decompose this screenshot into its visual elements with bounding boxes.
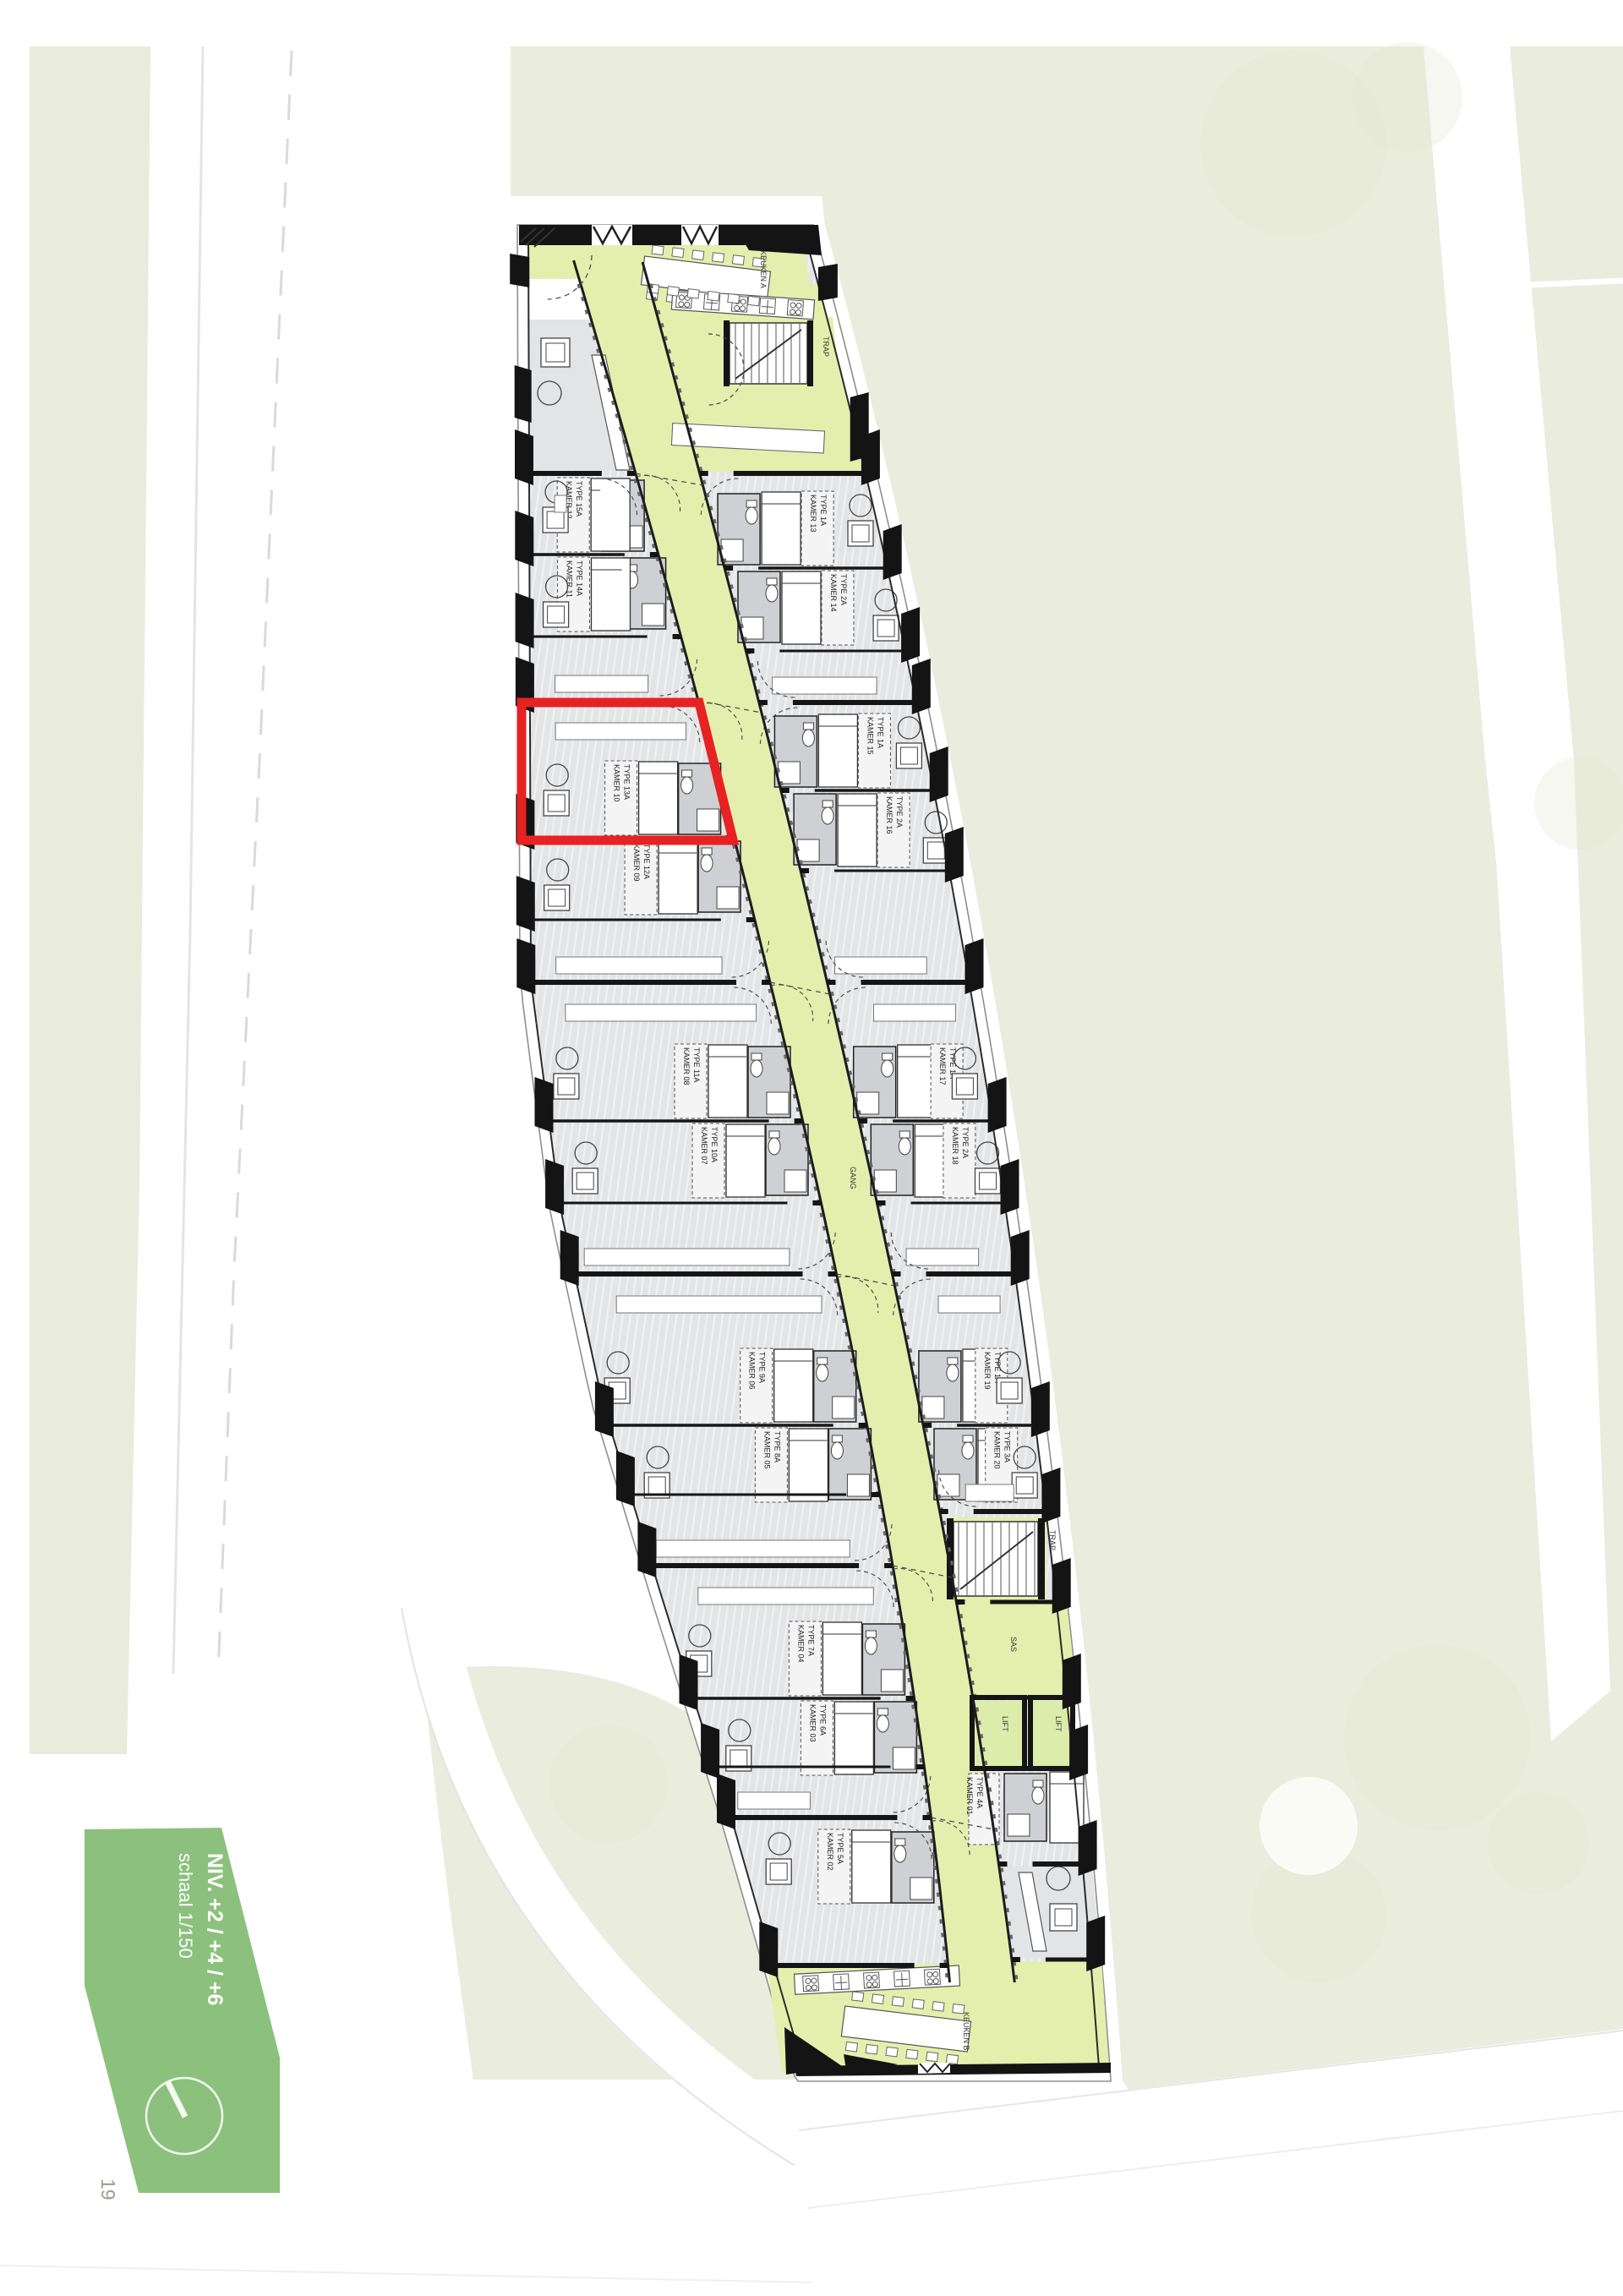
svg-text:SAS: SAS <box>1009 1637 1018 1652</box>
svg-text:LIFT: LIFT <box>1001 1716 1009 1732</box>
svg-text:KAMER 03: KAMER 03 <box>808 1704 817 1742</box>
svg-text:KAMER 14: KAMER 14 <box>829 574 838 612</box>
svg-text:TYPE 7A: TYPE 7A <box>806 1625 815 1656</box>
svg-text:KAMER 09: KAMER 09 <box>632 844 641 882</box>
svg-text:TYPE 10A: TYPE 10A <box>710 1127 719 1162</box>
svg-text:KAMER 04: KAMER 04 <box>796 1625 805 1663</box>
svg-text:TYPE 14A: TYPE 14A <box>576 560 584 596</box>
svg-text:KEUKEN A: KEUKEN A <box>759 250 768 288</box>
svg-text:TYPE 12A: TYPE 12A <box>642 844 651 879</box>
svg-text:KAMER 17: KAMER 17 <box>938 1047 947 1085</box>
svg-text:TYPE 13A: TYPE 13A <box>623 764 631 800</box>
svg-text:TYPE 9A: TYPE 9A <box>758 1352 767 1383</box>
svg-text:KAMER 07: KAMER 07 <box>700 1127 708 1165</box>
svg-text:KAMER 08: KAMER 08 <box>682 1047 691 1085</box>
svg-text:TYPE 11A: TYPE 11A <box>692 1047 701 1082</box>
svg-text:KAMER 15: KAMER 15 <box>866 717 874 755</box>
svg-text:KEUKEN B: KEUKEN B <box>962 2012 970 2051</box>
svg-text:TYPE 2A: TYPE 2A <box>895 796 904 828</box>
svg-text:TYPE 2A: TYPE 2A <box>839 574 848 605</box>
svg-text:KAMER 20: KAMER 20 <box>993 1431 1002 1469</box>
svg-text:KAMER 18: KAMER 18 <box>951 1127 959 1165</box>
svg-text:KAMER 06: KAMER 06 <box>748 1352 757 1390</box>
svg-text:TYPE 2A: TYPE 2A <box>961 1127 970 1158</box>
svg-text:TYPE 1A: TYPE 1A <box>819 495 828 526</box>
svg-text:KAMER 16: KAMER 16 <box>885 796 893 834</box>
svg-text:schaal 1/150: schaal 1/150 <box>175 1853 196 1959</box>
svg-text:TYPE 8A: TYPE 8A <box>773 1431 781 1462</box>
svg-text:KAMER 05: KAMER 05 <box>762 1431 771 1469</box>
svg-text:19: 19 <box>97 2178 119 2200</box>
svg-text:KAMER 02: KAMER 02 <box>826 1833 834 1871</box>
svg-text:LIFT: LIFT <box>1054 1716 1063 1732</box>
svg-text:TRAP: TRAP <box>822 336 830 357</box>
svg-text:GANG: GANG <box>849 1167 857 1189</box>
svg-text:NIV. +2 / +4 / +6: NIV. +2 / +4 / +6 <box>203 1853 227 2005</box>
svg-text:TYPE 1A: TYPE 1A <box>876 717 884 748</box>
svg-text:KAMER 19: KAMER 19 <box>983 1352 992 1390</box>
svg-text:TYPE 6A: TYPE 6A <box>818 1704 827 1736</box>
svg-text:TYPE 15A: TYPE 15A <box>575 481 583 517</box>
svg-text:KAMER 10: KAMER 10 <box>613 764 621 802</box>
svg-text:KAMER 13: KAMER 13 <box>809 495 817 533</box>
svg-text:TYPE 4A: TYPE 4A <box>975 1777 984 1808</box>
svg-text:TYPE 3A: TYPE 3A <box>1003 1431 1012 1462</box>
svg-text:TYPE 5A: TYPE 5A <box>836 1833 844 1864</box>
svg-text:KAMER 01: KAMER 01 <box>965 1777 974 1815</box>
